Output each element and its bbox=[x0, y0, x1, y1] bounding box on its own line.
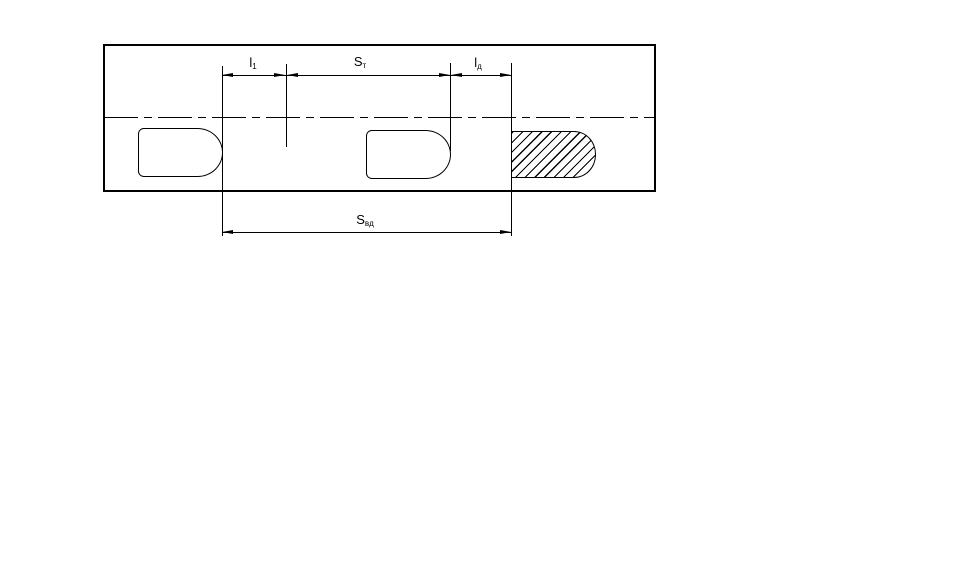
dimension-label-svd-base: S bbox=[356, 212, 365, 227]
dimension-line-top bbox=[222, 75, 511, 76]
dimension-label-svd-subscript: вд bbox=[365, 219, 374, 228]
centerline bbox=[104, 117, 655, 118]
arrowhead-st-right bbox=[439, 73, 450, 77]
slot-middle bbox=[366, 130, 451, 179]
arrowhead-ld-right bbox=[500, 73, 511, 77]
arrowhead-st-left bbox=[287, 73, 298, 77]
arrowhead-svd-left bbox=[222, 230, 233, 234]
slot-left bbox=[138, 128, 223, 177]
extension-line-right bbox=[511, 63, 512, 236]
arrowhead-l1-left bbox=[222, 73, 233, 77]
dimension-label-l1-subscript: 1 bbox=[252, 62, 256, 71]
dimension-label-svd: Sвд bbox=[348, 213, 382, 231]
slot-hatched-section bbox=[511, 131, 596, 178]
extension-line-left bbox=[222, 66, 223, 236]
arrowhead-ld-left bbox=[451, 73, 462, 77]
technical-drawing-canvas: l1 Sт lд Sвд bbox=[0, 0, 953, 579]
dimension-label-st-subscript: т bbox=[363, 61, 367, 70]
dimension-label-ld: lд bbox=[466, 56, 490, 74]
arrowhead-svd-right bbox=[500, 230, 511, 234]
dimension-label-st: Sт bbox=[345, 55, 375, 73]
dimension-label-ld-subscript: д bbox=[477, 62, 482, 71]
dimension-label-st-base: S bbox=[354, 54, 363, 69]
dimension-label-l1: l1 bbox=[243, 56, 263, 74]
arrowhead-l1-right bbox=[274, 73, 285, 77]
dimension-line-bottom bbox=[222, 232, 511, 233]
